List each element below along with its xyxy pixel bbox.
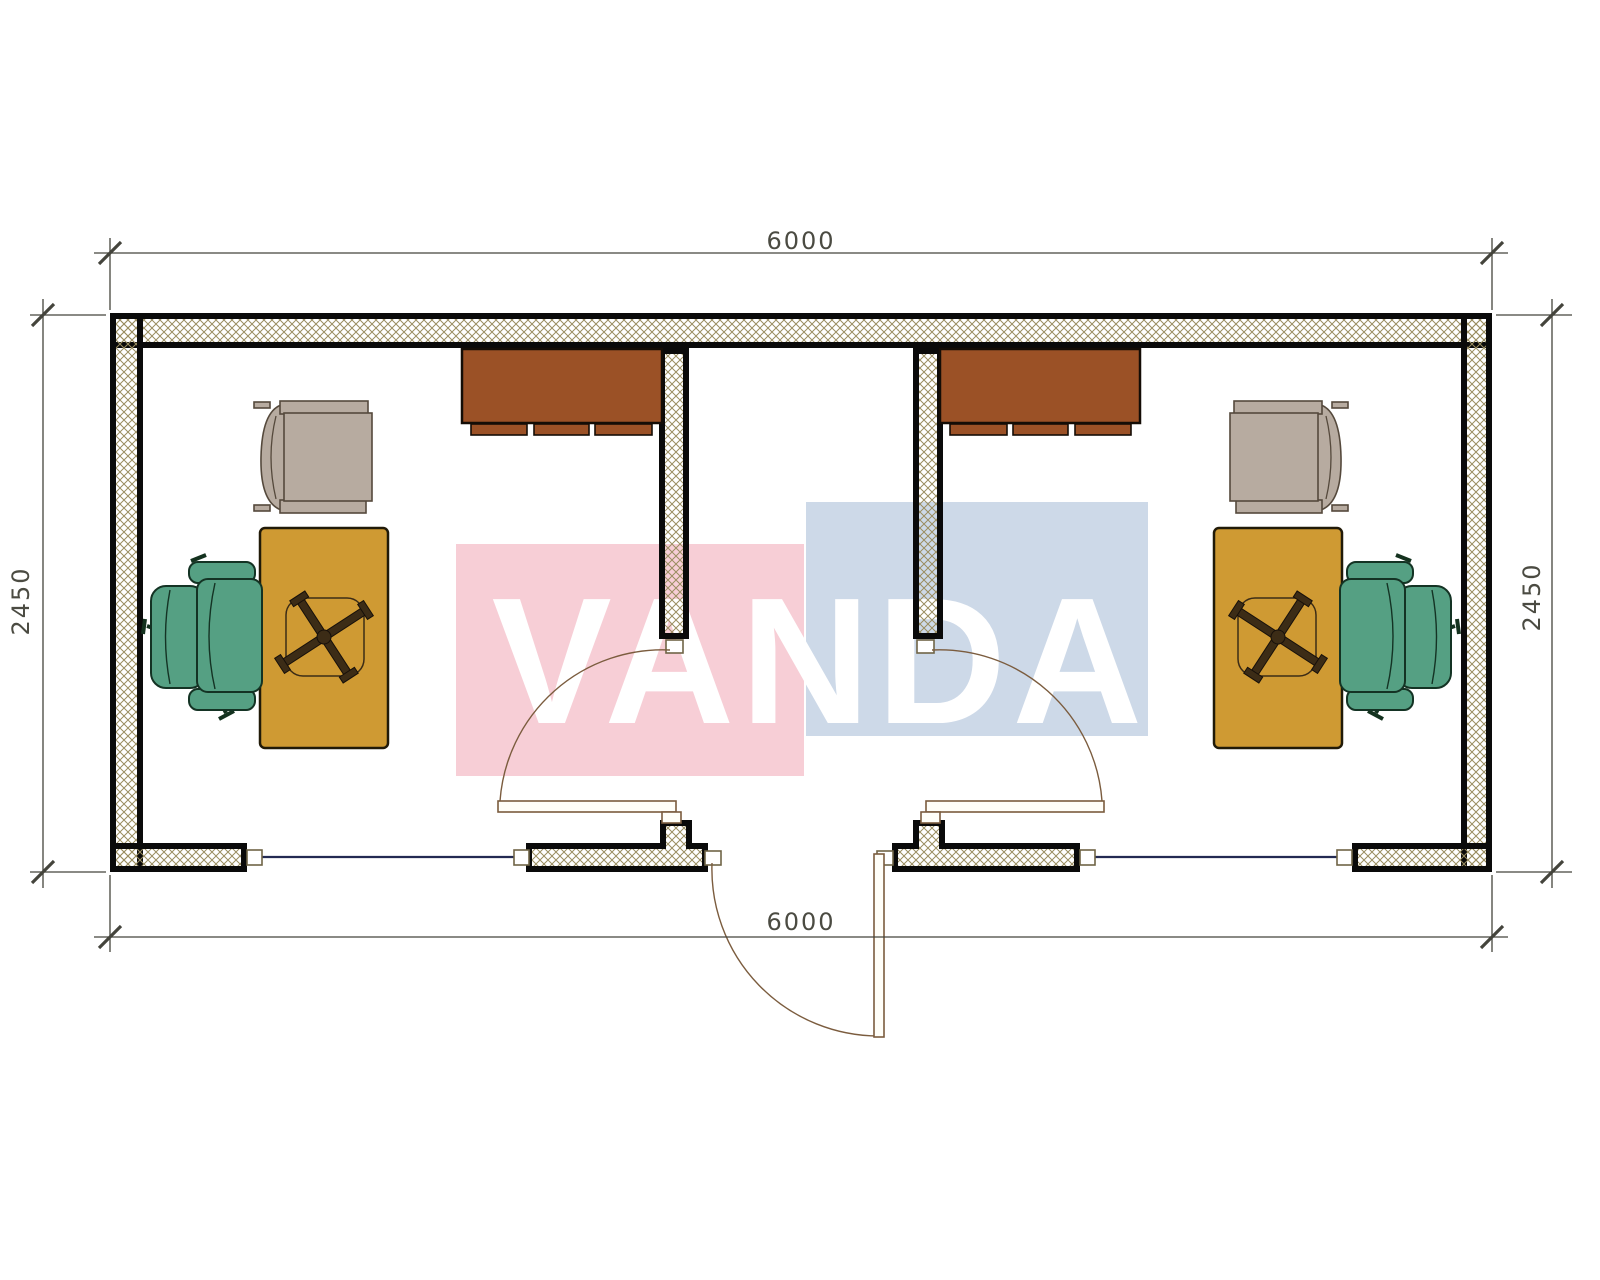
jamb-window-left-a — [247, 850, 262, 865]
jamb-window-right-a — [1080, 850, 1095, 865]
floor-plan-canvas: VANDA — [0, 0, 1600, 1280]
jamb-window-left-b — [514, 850, 529, 865]
dimension-left-value: 2450 — [7, 566, 35, 635]
wall-bottom-right-corner — [1355, 846, 1489, 869]
jamb-entry-left — [705, 851, 721, 865]
watermark: VANDA — [456, 502, 1148, 776]
dimension-top: 6000 — [94, 227, 1508, 310]
watermark-text: VANDA — [492, 561, 1149, 762]
wall-bottom-right-segment — [895, 823, 1077, 869]
partition-wall-left — [662, 351, 686, 636]
wall-top — [113, 316, 1489, 345]
dimension-top-value: 6000 — [766, 227, 835, 255]
jamb-partition-right — [917, 640, 934, 653]
dimension-bottom-value: 6000 — [766, 908, 835, 936]
partition-wall-right — [916, 351, 940, 636]
dimension-right-value: 2450 — [1518, 562, 1546, 631]
wall-right — [1464, 316, 1489, 869]
entry-door — [712, 854, 884, 1037]
wall-bottom-left-corner — [113, 846, 244, 869]
jamb-window-right-b — [1337, 850, 1352, 865]
office-chair — [143, 555, 262, 719]
dimension-right: 2450 — [1496, 299, 1572, 888]
cabinet — [462, 349, 662, 435]
entry-door-arc — [712, 863, 879, 1036]
chair-seat — [197, 579, 262, 692]
dimension-left: 2450 — [7, 299, 106, 888]
desk — [253, 528, 395, 748]
wall-left — [113, 316, 140, 869]
wall-bottom-left-segment — [529, 823, 705, 869]
jamb-partition-left — [666, 640, 683, 653]
dimension-bottom: 6000 — [94, 875, 1508, 952]
entry-door-leaf — [874, 854, 884, 1037]
armchair — [254, 401, 372, 513]
